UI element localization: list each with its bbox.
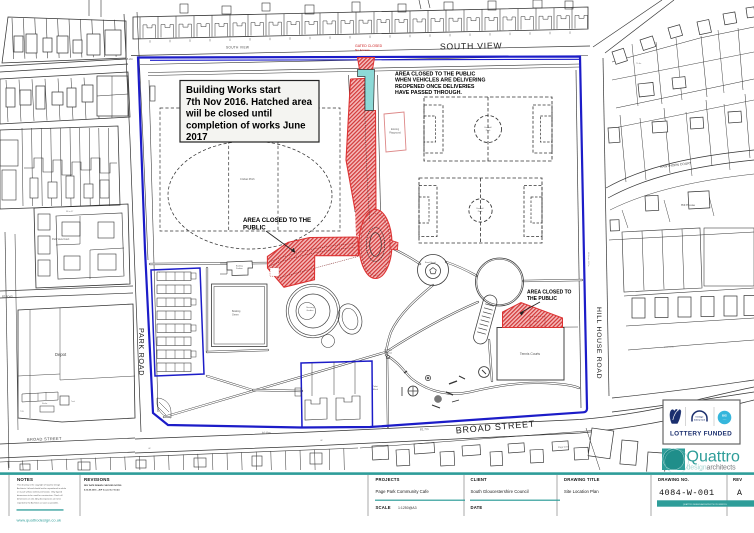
svg-text:wiil be closed until: wiil be closed until xyxy=(185,109,272,120)
svg-text:REV DATE DRAWN CHEC: REV DATE DRAWN CHECKED NOTES xyxy=(84,484,122,487)
svg-text:Building Works start: Building Works start xyxy=(186,85,281,96)
svg-text:Hill House: Hill House xyxy=(681,203,695,207)
svg-text:71.4m: 71.4m xyxy=(636,63,642,65)
svg-text:Quattro: Quattro xyxy=(687,449,740,466)
svg-text:HILL HOUSE ROAD: HILL HOUSE ROAD xyxy=(595,307,602,379)
svg-text:Site Location Plan: Site Location Plan xyxy=(564,489,599,494)
svg-text:WHEN VEHICLES ARE DELIVERING: WHEN VEHICLES ARE DELIVERING xyxy=(395,78,485,84)
svg-text:Pitch: Pitch xyxy=(478,210,482,213)
svg-text:AREA CLOSED TO THE PUBLIC: AREA CLOSED TO THE PUBLIC xyxy=(395,72,476,78)
svg-text:dimensions to be used for cons: dimensions to be used for construction. … xyxy=(17,494,63,497)
svg-text:AREA CLOSED TO: AREA CLOSED TO xyxy=(527,290,572,296)
svg-text:Football: Football xyxy=(476,207,484,210)
svg-text:Hill House 3.657m: Hill House 3.657m xyxy=(587,252,589,267)
svg-text:Toilet: Toilet xyxy=(373,385,378,388)
svg-text:SOUTH VIEW: SOUTH VIEW xyxy=(226,46,249,50)
svg-text:HAVE PASSED THROUGH.: HAVE PASSED THROUGH. xyxy=(395,90,462,96)
svg-text:dimensions on site. Any discre: dimensions on site. Any discrepancies ar… xyxy=(17,498,62,501)
svg-text:REOPENED ONCE DELIVERIES: REOPENED ONCE DELIVERIES xyxy=(395,84,475,90)
svg-text:DRAWING TITLE: DRAWING TITLE xyxy=(564,477,600,482)
svg-text:Pavilion: Pavilion xyxy=(236,268,243,270)
svg-text:South Gloucestershire Council: South Gloucestershire Council xyxy=(471,489,529,494)
svg-text:Tank: Tank xyxy=(71,401,75,403)
svg-text:designarchitects: designarchitects xyxy=(687,464,737,471)
svg-text:Park View Court: Park View Court xyxy=(52,238,70,241)
svg-text:CLIENT: CLIENT xyxy=(471,477,488,482)
svg-text:7th Nov 2016. Hatched area: 7th Nov 2016. Hatched area xyxy=(186,97,313,108)
svg-text:Shelter: Shelter xyxy=(42,402,48,405)
svg-text:Block: Block xyxy=(373,389,378,391)
svg-text:1:1250@A3: 1:1250@A3 xyxy=(398,506,417,510)
svg-text:Cricket Pitch: Cricket Pitch xyxy=(240,177,255,181)
svg-text:AREA CLOSED TO THE: AREA CLOSED TO THE xyxy=(243,217,311,224)
svg-text:8: 8 xyxy=(159,272,160,274)
svg-text:Architects Ltd and should not: Architects Ltd and should not be reprodu… xyxy=(17,487,67,490)
svg-text:Fountain: Fountain xyxy=(384,352,393,355)
svg-text:RT ROAD: RT ROAD xyxy=(2,296,13,299)
svg-text:PUBLIC: PUBLIC xyxy=(243,225,266,232)
svg-text:Depot: Depot xyxy=(55,352,67,357)
svg-text:Page Park Community Cafe: Page Park Community Cafe xyxy=(376,489,430,494)
svg-text:This drawing is the copyright: This drawing is the copyright of Quattro… xyxy=(17,484,61,487)
svg-text:Green: Green xyxy=(232,314,239,317)
svg-text:or in part without written per: or in part without written permission. O… xyxy=(17,491,63,494)
svg-text:QUATTRO DESIGN ARCHITECTS LTD: QUATTRO DESIGN ARCHITECTS LTD BRISTOL xyxy=(683,503,728,506)
svg-text:38 to 57: 38 to 57 xyxy=(66,210,74,213)
svg-text:REVISIONS: REVISIONS xyxy=(84,477,110,482)
svg-text:Drinking: Drinking xyxy=(384,349,392,352)
svg-text:Pitch: Pitch xyxy=(486,129,490,132)
svg-text:www.quattrodesign.co.uk: www.quattrodesign.co.uk xyxy=(17,518,61,523)
svg-text:No Access: No Access xyxy=(355,48,370,52)
svg-text:LOTTERY FUNDED: LOTTERY FUNDED xyxy=(670,431,732,438)
svg-text:NOTES: NOTES xyxy=(17,477,33,482)
svg-text:REV: REV xyxy=(733,477,742,482)
svg-text:BIG: BIG xyxy=(722,414,727,418)
svg-text:Playground: Playground xyxy=(389,132,401,135)
svg-text:Sensory: Sensory xyxy=(306,306,315,309)
svg-text:THE PUBLIC: THE PUBLIC xyxy=(527,296,557,302)
svg-text:82.8m: 82.8m xyxy=(262,431,271,435)
svg-text:81.7m: 81.7m xyxy=(420,427,429,431)
svg-text:heritage: heritage xyxy=(696,416,705,419)
svg-text:Football: Football xyxy=(484,126,492,129)
svg-text:Toilets: Toilets xyxy=(533,320,538,323)
svg-text:Tennis Courts: Tennis Courts xyxy=(520,352,541,356)
svg-text:completion of works June: completion of works June xyxy=(186,120,306,131)
svg-text:Existing: Existing xyxy=(391,128,400,131)
svg-text:PROJECTS: PROJECTS xyxy=(376,477,400,482)
svg-text:SCALE: SCALE xyxy=(376,505,391,510)
svg-text:reported to the Architect as s: reported to the Architect as soon as pos… xyxy=(17,501,59,504)
svg-text:DATE: DATE xyxy=(471,505,483,510)
svg-text:4084-W-001: 4084-W-001 xyxy=(659,488,715,498)
svg-text:2017: 2017 xyxy=(186,132,208,143)
svg-text:PARK ROAD: PARK ROAD xyxy=(137,328,146,376)
svg-text:Band Stand: Band Stand xyxy=(425,261,435,264)
svg-text:lottery fund: lottery fund xyxy=(694,419,706,422)
svg-text:SOUTH VIEW: SOUTH VIEW xyxy=(440,40,503,51)
svg-text:A 14.09.2016 - JDP Is: A 14.09.2016 - JDP Issued for Tender xyxy=(84,488,120,491)
svg-text:78.2m: 78.2m xyxy=(125,57,134,61)
svg-text:Garden: Garden xyxy=(307,309,315,312)
svg-text:A: A xyxy=(737,489,742,498)
svg-text:DRAWING NO.: DRAWING NO. xyxy=(658,477,689,482)
